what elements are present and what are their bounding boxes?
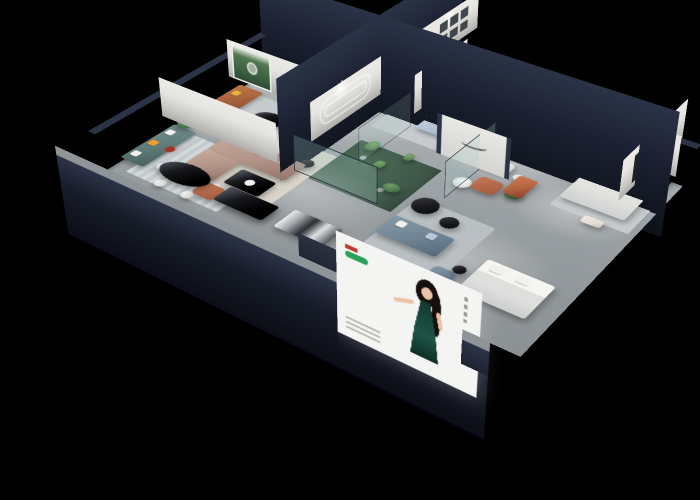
pillow-yellow — [230, 90, 242, 96]
pillow — [515, 276, 533, 287]
pillow — [129, 150, 142, 157]
pillow-orange — [147, 139, 160, 146]
tray — [242, 179, 257, 187]
pillow — [394, 220, 408, 228]
pillow — [488, 265, 506, 275]
showroom-floor — [107, 52, 683, 357]
pillow — [424, 232, 438, 240]
figure-arm — [393, 297, 415, 304]
pillow — [164, 129, 177, 136]
render-canvas — [0, 0, 700, 500]
mural-mirror — [247, 61, 258, 77]
